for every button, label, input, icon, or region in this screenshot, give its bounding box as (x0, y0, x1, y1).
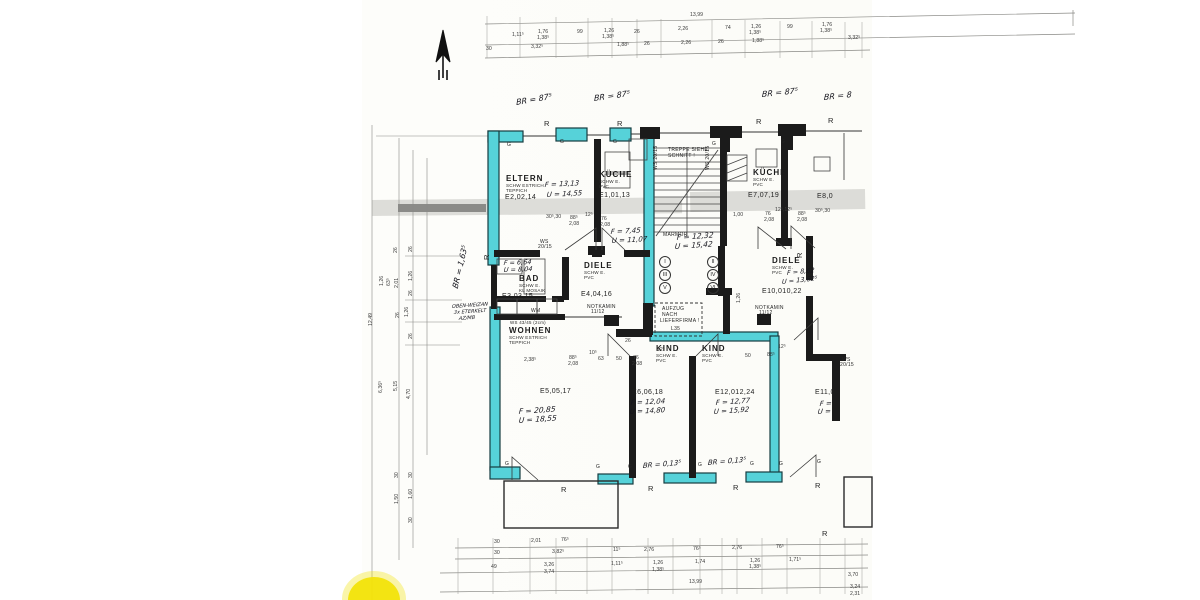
wall-letter-label: G (507, 143, 511, 148)
room-name-label: ELTERN (506, 175, 543, 183)
dimension-label: 63⁵ (387, 278, 392, 286)
room-finish-label: TEPPICH (509, 341, 530, 346)
dimension-label: 26 (718, 40, 724, 45)
scanned-floor-plan: ELTERNKÜCHEBADDIELEWOHNENKINDKINDKÜCHEDI… (0, 0, 1200, 600)
dimension-label: 76⁵ (776, 545, 784, 550)
dimension-label: 2,08 (797, 218, 807, 223)
dimension-label: 50 (616, 357, 622, 362)
dimension-label: 3,26 (544, 563, 554, 568)
dimension-label: 12,49 (369, 313, 374, 326)
dimension-label: 1,38⁵ (537, 36, 549, 41)
room-code-label: E2,02,14 (505, 194, 536, 201)
room-code-label: E4,04,16 (581, 291, 612, 298)
handwritten-annotation: U = 18,55 (518, 414, 556, 424)
dimension-label: 1,50 (395, 494, 400, 504)
room-code-label: E8,0 (817, 193, 833, 200)
dimension-label: 12⁵ (585, 213, 593, 218)
handwritten-annotation: U = (817, 408, 831, 416)
dimension-label: 1,26 (405, 307, 410, 317)
dimension-label: 13,99 (689, 580, 702, 585)
room-finish-label: TEPPICH (506, 189, 527, 194)
wall-letter-label: R (544, 120, 549, 128)
room-code-label: E5,05,17 (540, 388, 571, 395)
room-finish-label: PVC (599, 185, 609, 190)
dimension-label: 50 (745, 354, 751, 359)
dimension-label: 11⁵ (613, 548, 621, 553)
dimension-label: 3,24 (850, 585, 860, 590)
dimension-label: 1,26 (380, 276, 385, 286)
dimension-label: 2,08 (764, 218, 774, 223)
unit-number-badge: IV (707, 269, 719, 281)
dimension-label: 30 (494, 540, 500, 545)
dimension-label: 30 (395, 472, 400, 478)
wall-letter-label: G (781, 140, 785, 145)
handwritten-annotation: BR = 0,13⁵ (643, 460, 682, 470)
dimension-label: 2,01 (395, 278, 400, 288)
handwritten-annotation: U = 14,55 (546, 190, 582, 199)
dimension-label: 30 (494, 551, 500, 556)
wall-letter-label: G (698, 463, 702, 468)
dimension-label: 3,70 (848, 573, 858, 578)
dimension-label: 12⁵ (778, 345, 786, 350)
dimension-label: 1,26 (409, 271, 414, 281)
dimension-label: 2,08 (632, 362, 642, 367)
room-name-label: KÜCHE (753, 169, 786, 177)
dimension-label: 1,88⁵ (752, 39, 764, 44)
room-name-label: DIELE (584, 262, 613, 270)
dimension-label: 2,38⁵ (524, 358, 536, 363)
note-label: LIEFERFIRMA ! (660, 319, 699, 324)
dimension-label: 26 (644, 42, 650, 47)
room-name-label: BAD (519, 275, 539, 283)
dimension-label: 99 (787, 25, 793, 30)
handwritten-annotation: AZ/MB (459, 316, 476, 322)
dimension-label: 10⁵ (589, 351, 597, 356)
note-label: WS 43/45 (2cm) (510, 321, 546, 325)
plan-labels-layer: ELTERNKÜCHEBADDIELEWOHNENKINDKINDKÜCHEDI… (0, 0, 1200, 600)
dimension-label: 3,82⁵ (552, 550, 564, 555)
wall-letter-label: G (750, 462, 754, 467)
room-code-label: E11,0 (815, 389, 835, 396)
room-code-label: E1,01,13 (599, 192, 630, 199)
unit-number-badge: I (659, 256, 671, 268)
dimension-label: 3,32⁵ (531, 45, 543, 50)
dimension-label: 76⁵ (693, 547, 701, 552)
wall-letter-label: R (561, 486, 566, 494)
wall-letter-label: R (483, 255, 491, 260)
handwritten-annotation: U = 15,92 (714, 407, 750, 417)
dimension-label: 49 (491, 565, 497, 570)
dimension-label: 1,26 (653, 561, 663, 566)
room-code-label: E3,03,15 (502, 293, 533, 300)
handwritten-annotation: BR = 87⁵ (762, 87, 798, 99)
dimension-label: 2,08 (569, 222, 579, 227)
dimension-label: 63 (598, 357, 604, 362)
wall-letter-label: R (796, 253, 804, 258)
dimension-label: 2,76 (644, 548, 654, 553)
dimension-label: 1,60 (409, 489, 414, 499)
dimension-label: 13,99 (690, 13, 703, 18)
wall-letter-label: R (828, 117, 833, 125)
room-finish-label: PVC (656, 359, 666, 364)
wall-letter-label: G (613, 140, 617, 145)
note-label: 11/12 (591, 310, 605, 315)
dimension-label: 2,08 (568, 362, 578, 367)
dimension-label: 1,71⁵ (789, 558, 801, 563)
wall-letter-label: R (617, 120, 622, 128)
dimension-label: 3,74 (544, 570, 554, 575)
dimension-label: 26 (409, 246, 414, 252)
wall-letter-label: G (628, 465, 632, 470)
wall-letter-label: R (648, 485, 653, 493)
dimension-label: 1,74 (695, 560, 705, 565)
dimension-label: 26 (409, 290, 414, 296)
unit-number-badge: II (707, 256, 719, 268)
room-code-label: E10,010,22 (762, 288, 802, 295)
dimension-label: 99 (577, 30, 583, 35)
room-name-label: WOHNEN (509, 327, 551, 335)
dimension-label: 5,15 (394, 381, 399, 391)
wall-letter-label: G (505, 462, 509, 467)
handwritten-annotation: BR = 1,63⁵ (452, 244, 469, 290)
room-code-label: E7,07,19 (748, 192, 779, 199)
wall-letter-label: R (815, 482, 820, 490)
handwritten-annotation: F = 13,13 (544, 180, 579, 189)
wall-letter-label: R (822, 530, 827, 538)
note-label: 20/15 (840, 363, 854, 368)
note-label: 11/12 (759, 311, 773, 316)
handwritten-annotation: U = 11,07 (611, 236, 647, 245)
dimension-label: 12⁵,12⁵ (775, 208, 792, 213)
dimension-label: 1,00 (733, 213, 743, 218)
dimension-label: 74 (725, 26, 731, 31)
dimension-label: 30 (486, 47, 492, 52)
dimension-label: 1,38⁵ (820, 29, 832, 34)
note-label: WS 20/15 (654, 146, 659, 170)
dimension-label: 30 (409, 517, 414, 523)
dimension-label: 3,32⁵ (848, 36, 860, 41)
room-finish-label: PVC (772, 271, 782, 276)
dimension-label: 1,38⁵ (749, 565, 761, 570)
note-label: SCHNITT ! (668, 154, 695, 159)
wall-letter-label: G (560, 140, 564, 145)
dimension-label: 26 (409, 333, 414, 339)
dimension-label: 2,26 (681, 41, 691, 46)
unit-number-badge: VI (707, 282, 719, 294)
dimension-label: 1,38⁵ (602, 35, 614, 40)
note-label: L35 (671, 327, 680, 332)
dimension-label: 1,38⁵ (749, 31, 761, 36)
room-finish-label: PVC (584, 276, 594, 281)
dimension-label: 2,31 (850, 592, 860, 597)
dimension-label: 6,36⁵ (379, 381, 384, 393)
room-finish-label: PVC (702, 359, 712, 364)
wall-letter-label: G (596, 465, 600, 470)
dimension-label: 30⁵,30 (546, 215, 561, 220)
room-name-label: KÜCHE (599, 171, 632, 179)
dimension-label: 2,76 (732, 546, 742, 551)
handwritten-annotation: BR = 87⁵ (594, 90, 630, 103)
dimension-label: 1,38⁵ (652, 568, 664, 573)
dimension-label: 4,70 (407, 389, 412, 399)
dimension-label: 30⁵,30 (815, 209, 830, 214)
wall-letter-label: G (779, 462, 783, 467)
wall-letter-label: R (733, 484, 738, 492)
room-finish-label: PVC (753, 183, 763, 188)
note-label: WM (531, 309, 540, 314)
dimension-label: 76⁵ (561, 538, 569, 543)
room-code-label: E6,06,18 (632, 389, 663, 396)
dimension-label: 1,26 (737, 293, 742, 303)
wall-letter-label: R (756, 118, 761, 126)
dimension-label: 26 (625, 339, 631, 344)
handwritten-annotation: BR = 0,13⁵ (708, 457, 747, 467)
dimension-label: 30 (409, 472, 414, 478)
dimension-label: 1,11⁵ (512, 33, 524, 38)
dimension-label: 26 (394, 247, 399, 253)
dimension-label: 2,26 (678, 27, 688, 32)
dimension-label: 2,01 (531, 539, 541, 544)
handwritten-annotation: U = 14,80 (629, 407, 665, 416)
dimension-label: 26 (634, 30, 640, 35)
handwritten-annotation: U = 13,62⁵ (782, 275, 818, 285)
dimension-label: 26 (396, 312, 401, 318)
dimension-label: 12⁵ (657, 348, 665, 353)
wall-letter-label: G (817, 460, 821, 465)
dimension-label: 2,08 (600, 223, 610, 228)
room-name-label: DIELE (772, 257, 801, 265)
dimension-label: 1,11⁵ (611, 562, 623, 567)
room-name-label: KIND (702, 345, 726, 353)
handwritten-annotation: BR = 8 (824, 91, 852, 102)
unit-number-badge: V (659, 282, 671, 294)
handwritten-annotation: BR = 87⁵ (516, 93, 552, 107)
handwritten-annotation: U = 15,42 (674, 240, 712, 250)
dimension-label: 88⁵ (767, 353, 775, 358)
unit-number-badge: III (659, 269, 671, 281)
handwritten-annotation: U = 8,04 (503, 266, 532, 274)
note-label: 20/15 (538, 245, 552, 250)
dimension-label: 1,88⁵ (617, 43, 629, 48)
wall-letter-label: G (712, 142, 716, 147)
note-label: WS 20/15 (706, 146, 711, 170)
room-code-label: E12,012,24 (715, 389, 755, 396)
